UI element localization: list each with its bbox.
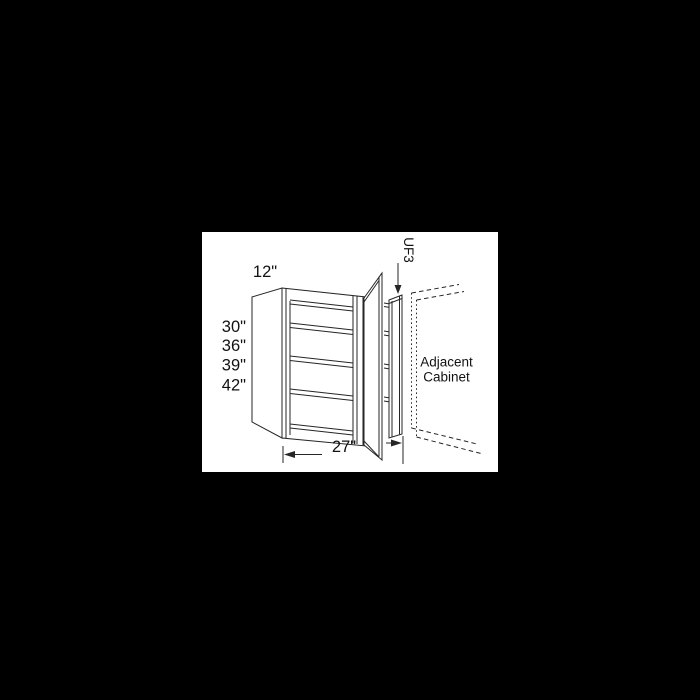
width-label: 27" bbox=[332, 438, 356, 456]
cabinet-spec-diagram: 12" 30" 36" 39" 42" 27" UF3 Adjacent Cab… bbox=[0, 0, 700, 700]
depth-label: 12" bbox=[253, 263, 277, 281]
height-option-39: 39" bbox=[222, 357, 246, 375]
cabinet-face-frame bbox=[282, 288, 366, 446]
adjacent-cabinet-label-line1: Adjacent bbox=[420, 355, 473, 370]
filler-strip bbox=[389, 295, 402, 438]
cabinet-side-panel bbox=[252, 288, 282, 438]
adjacent-cabinet-label: Adjacent Cabinet bbox=[420, 355, 473, 385]
height-option-42: 42" bbox=[222, 377, 246, 395]
filler-label: UF3 bbox=[401, 237, 416, 263]
cabinet-spec-page: 12" 30" 36" 39" 42" 27" UF3 Adjacent Cab… bbox=[0, 0, 700, 700]
height-option-30: 30" bbox=[222, 318, 246, 336]
open-door bbox=[364, 273, 382, 460]
adjacent-cabinet-label-line2: Cabinet bbox=[423, 370, 470, 385]
height-option-36: 36" bbox=[222, 337, 246, 355]
